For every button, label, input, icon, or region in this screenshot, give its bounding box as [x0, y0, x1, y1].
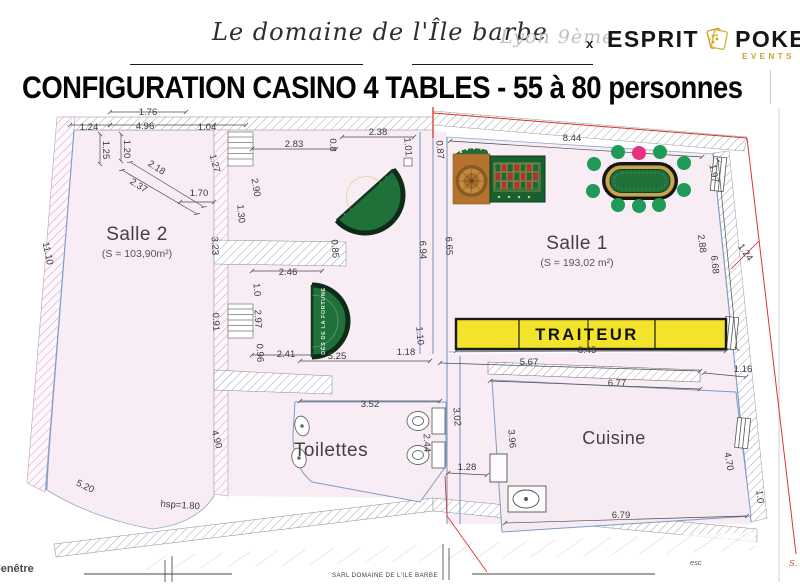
poker-chair — [587, 157, 601, 171]
salle-1-area: (S = 193,02 m²) — [540, 257, 613, 269]
dimension-label: 1.76 — [139, 107, 158, 118]
collab-x: x — [586, 36, 593, 51]
venue-underline — [130, 64, 363, 65]
brand-esprit-poker: ESPRIT POKER — [607, 24, 800, 54]
stairs-top — [228, 132, 253, 166]
dimension-label: 1.25 — [100, 141, 111, 160]
dimension-label: 3.52 — [361, 399, 380, 410]
dimension-label: 1.10 — [413, 326, 426, 345]
roulette-grid-cell — [495, 164, 501, 172]
roulette-grid-cell — [514, 164, 520, 172]
dimension-label: 1.0 — [250, 283, 262, 297]
dimension-label: 5.67 — [520, 357, 539, 368]
roulette-grid-cell — [508, 164, 513, 172]
floor-plan-drawing: DÉS DE LA FORTUNE — [0, 104, 800, 584]
esc-label: esc — [690, 558, 702, 567]
dimension-label: 6.65 — [443, 236, 455, 255]
roulette-grid-cell — [508, 181, 513, 189]
roulette-grid-cell — [514, 181, 520, 189]
roulette-grid-cell — [520, 164, 526, 172]
dimension-label: 1.16 — [734, 364, 753, 375]
dimension-label: 2.46 — [279, 267, 298, 278]
poker-chair — [653, 145, 667, 159]
fenetre-label: Fenêtre — [0, 563, 34, 575]
dimension-label: 1.28 — [458, 462, 477, 473]
inner-wall-1 — [214, 240, 346, 266]
poker-chair — [632, 199, 646, 213]
page-edge-line — [770, 70, 771, 104]
venue-location: Lyon 9ème — [500, 26, 614, 48]
roulette-grid — [495, 164, 538, 189]
dimension-label: 2.97 — [252, 309, 264, 328]
poker-chair — [611, 198, 625, 212]
brand-esprit: ESPRIT — [607, 26, 699, 53]
sarl-label: SARL DOMAINE DE L'ILE BARBE — [332, 572, 438, 579]
poker-chair — [586, 184, 600, 198]
dimension-label: 5.25 — [328, 351, 347, 362]
roulette-grid-cell — [508, 173, 513, 181]
dimension-label: 6.77 — [608, 378, 627, 389]
dimension-label: 1.18 — [397, 347, 416, 358]
salle-1-label: Salle 1 — [546, 233, 608, 254]
dimension-label: 1.30 — [234, 204, 247, 223]
dimension-label: 1.70 — [190, 188, 209, 199]
dimension-label: 8.44 — [563, 133, 582, 144]
dimension-label: 1.24 — [80, 122, 99, 133]
poker-cards-icon — [702, 24, 732, 54]
roulette-grid-cell — [495, 181, 501, 189]
roulette-grid-cell — [501, 181, 507, 189]
dimension-label: 6.94 — [417, 240, 429, 259]
roulette-grid-cell — [533, 173, 539, 181]
poker-chair — [677, 156, 691, 170]
dimension-label: 0.91 — [210, 312, 222, 331]
header: Le domaine de l'Île barbe Lyon 9ème x ES… — [0, 0, 800, 104]
roulette-grid-cell — [520, 173, 526, 181]
roulette-grid-cell — [533, 164, 539, 172]
stairs-middle — [228, 304, 253, 338]
dimension-label: 1.0 — [753, 490, 765, 504]
dimension-label: 0.85 — [328, 239, 341, 258]
ground-hatch — [140, 532, 757, 570]
dimension-label: 0.96 — [254, 343, 266, 362]
s-mark: S. — [789, 559, 797, 569]
door-symbol — [404, 158, 412, 166]
dimension-label: 3.23 — [209, 236, 221, 255]
dimension-label: 2.44 — [421, 433, 433, 452]
dimension-label: 6.79 — [612, 510, 631, 521]
dimension-label: 2.38 — [369, 127, 388, 138]
page-title: CONFIGURATION CASINO 4 TABLES - 55 à 80 … — [22, 70, 767, 106]
salle-2-area: (S = 103,90m²) — [102, 248, 172, 260]
dimension-label: 1.04 — [198, 122, 217, 133]
roulette-grid-cell — [527, 173, 533, 181]
dimension-label: 6.68 — [708, 255, 721, 275]
roulette-grid-cell — [501, 164, 507, 172]
poker-chair — [677, 183, 691, 197]
dimension-label: 0.87 — [433, 140, 446, 159]
poker-chair — [652, 198, 666, 212]
location-underline — [412, 64, 593, 65]
toilettes-label: Toilettes — [294, 440, 368, 461]
poker-chair — [611, 145, 625, 159]
cuisine-label: Cuisine — [582, 428, 646, 448]
dimension-label: 3.02 — [450, 407, 463, 426]
floor-plan-page: Le domaine de l'Île barbe Lyon 9ème x ES… — [0, 0, 800, 584]
dimension-label: 8.45 — [578, 345, 597, 356]
dimension-label: 2.41 — [277, 349, 296, 360]
traiteur-label: TRAITEUR — [535, 326, 638, 344]
brand-events: EVENTS — [742, 52, 795, 61]
roulette-table — [453, 148, 545, 205]
dimension-label: 1.01 — [401, 137, 414, 156]
roulette-grid-cell — [495, 173, 501, 181]
roulette-grid-cell — [514, 173, 520, 181]
dimension-label: 3.96 — [505, 429, 518, 448]
salle-2-label: Salle 2 — [106, 224, 168, 245]
dimension-label: 4.96 — [136, 121, 155, 132]
roulette-grid-cell — [501, 173, 507, 181]
roulette-grid-cell — [533, 181, 539, 189]
roulette-grid-cell — [520, 181, 526, 189]
brand-poker: POKER — [735, 26, 800, 53]
fortune-table-label: DÉS DE LA FORTUNE — [319, 287, 327, 354]
dimension-label: 1.20 — [121, 140, 132, 159]
dimension-label: 0.8 — [327, 138, 338, 151]
roulette-grid-cell — [527, 181, 533, 189]
dimension-label: 2.83 — [285, 139, 304, 150]
venue-name: Le domaine de l'Île barbe — [212, 18, 548, 46]
roulette-grid-cell — [527, 164, 533, 172]
poker-chair-pink — [632, 146, 646, 160]
